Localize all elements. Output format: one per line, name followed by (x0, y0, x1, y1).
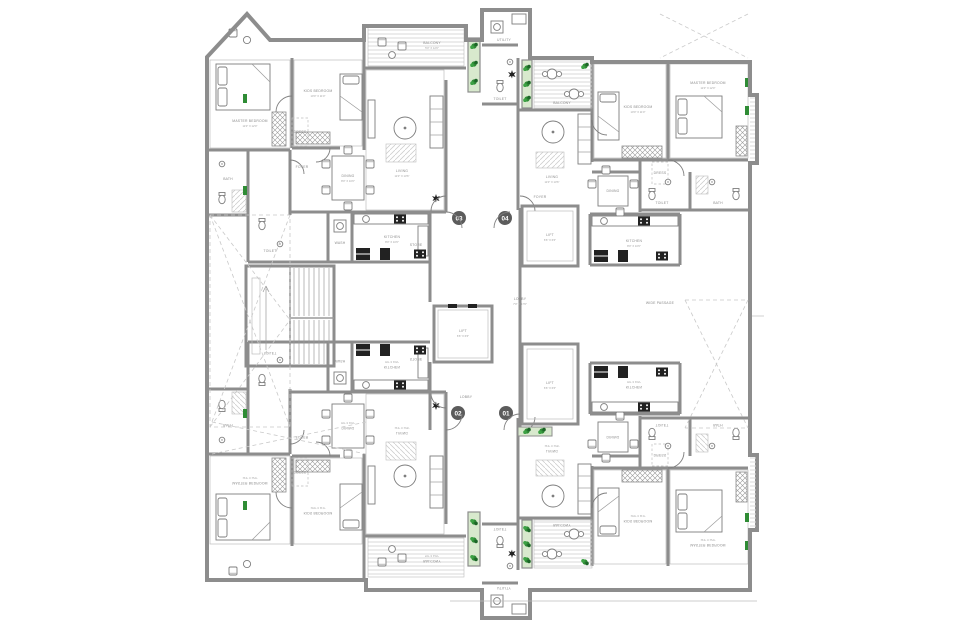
stair-direction-arrow (263, 286, 269, 350)
planter (518, 427, 552, 436)
floor-plan-page: BALCONY 5'0" X 12'0" MASTER BEDROOM 11' (0, 0, 957, 625)
unit-number: 02 (454, 411, 462, 418)
floor-plan-drawing: BALCONY 5'0" X 12'0" MASTER BEDROOM 11' (0, 0, 957, 625)
unit-number: 04 (501, 216, 509, 223)
passage-label: WIDE PASSAGE (646, 301, 675, 305)
unit-number: 01 (502, 411, 510, 418)
open-terrace-top-right (660, 14, 748, 58)
room-label: LOBBY (514, 297, 527, 301)
room-dim: 6'6" X 6'6" (544, 238, 556, 242)
room-label: LIFT (459, 329, 467, 333)
lift-shaft: LIFT 6'6" X 6'6" (522, 344, 578, 424)
room-label: LIFT (546, 381, 554, 385)
staircase (246, 266, 334, 366)
room-label: LIFT (546, 233, 554, 237)
room-dim: 6'6" X 6'6" (457, 334, 469, 338)
lift-shaft: LIFT 6'6" X 6'6" (522, 206, 578, 266)
lift-shaft: LIFT 6'6" X 6'6" (434, 304, 492, 362)
room-dim: 6'6" X 6'6" (544, 386, 556, 390)
unit-02-area (207, 342, 480, 578)
side-balcony (750, 457, 756, 528)
open-cutout-right (685, 300, 748, 428)
room-dim: 7'0" X 17'6" (513, 302, 527, 306)
unit-badge-02: 02 (451, 406, 465, 420)
open-cutout-left (210, 215, 290, 427)
unit-badge-01: 01 (499, 406, 513, 420)
room-label: LOBBY (460, 395, 473, 399)
unit-03-instance (207, 26, 480, 262)
